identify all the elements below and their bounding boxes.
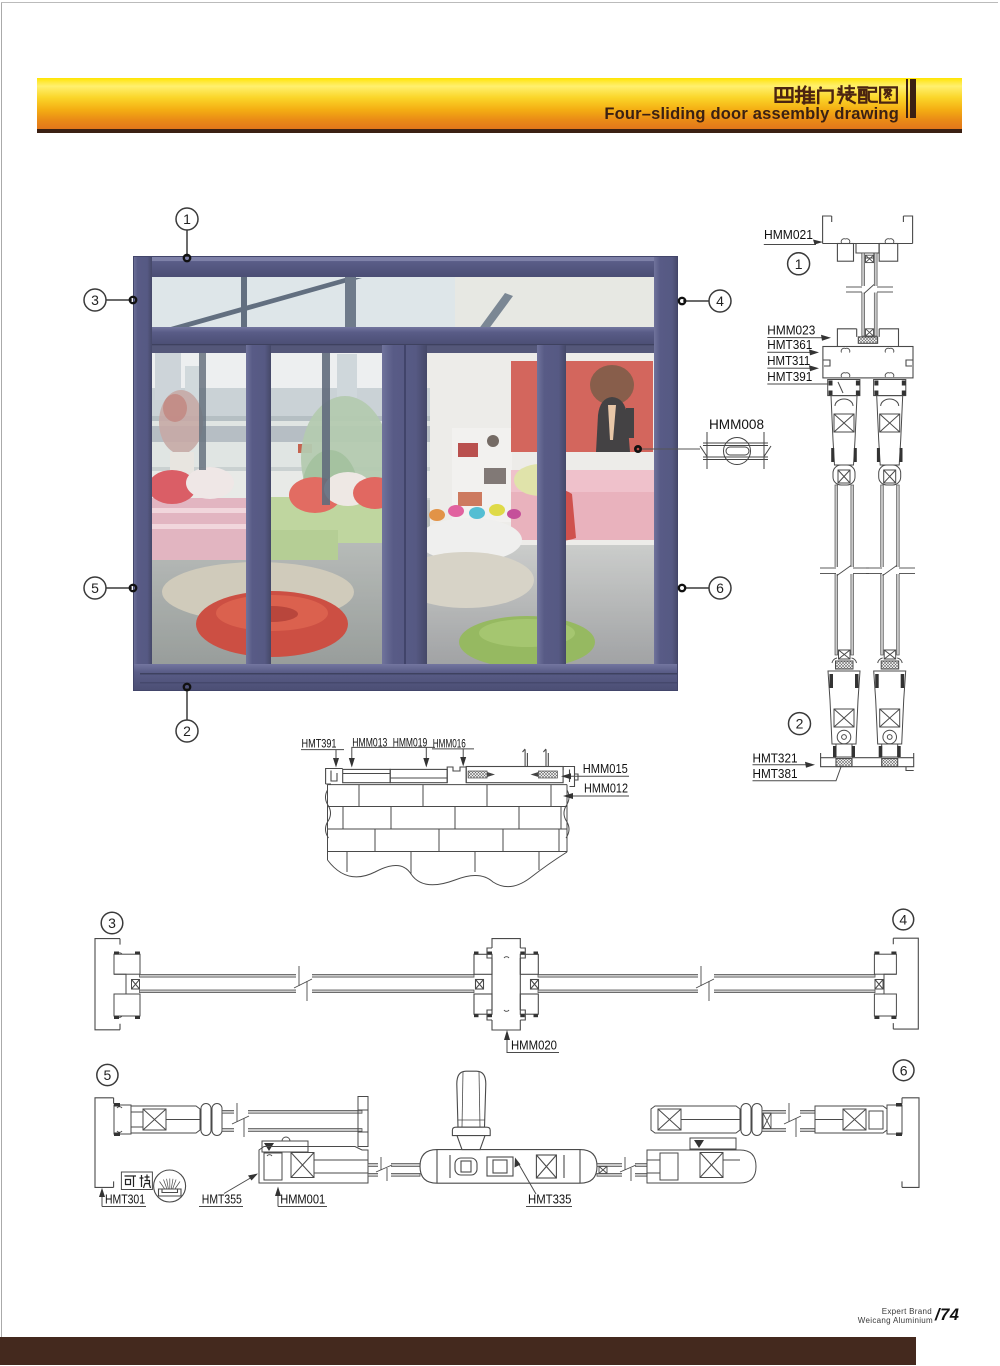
svg-text:HMT311: HMT311	[767, 354, 810, 368]
svg-text:HMM012: HMM012	[584, 781, 628, 796]
svg-text:HMT321: HMT321	[753, 751, 798, 765]
svg-text:1: 1	[795, 256, 803, 272]
svg-text:HMM023: HMM023	[767, 324, 815, 338]
svg-text:HMT335: HMT335	[528, 1193, 572, 1207]
svg-text:6: 6	[716, 580, 724, 596]
svg-text:HMM001: HMM001	[280, 1193, 325, 1207]
svg-text:HMM021: HMM021	[764, 228, 813, 242]
svg-text:HMM008: HMM008	[709, 417, 764, 432]
svg-text:HMT381: HMT381	[753, 767, 798, 781]
svg-text:2: 2	[183, 723, 191, 739]
svg-text:HMT361: HMT361	[767, 338, 812, 352]
svg-text:4: 4	[716, 293, 724, 309]
svg-text:HMT391: HMT391	[302, 737, 337, 751]
svg-text:5: 5	[104, 1067, 112, 1083]
svg-text:5: 5	[91, 580, 99, 596]
svg-text:HMM015: HMM015	[583, 761, 628, 776]
svg-text:6: 6	[900, 1062, 908, 1078]
svg-text:HMT391: HMT391	[767, 370, 812, 384]
svg-text:2: 2	[796, 716, 804, 732]
svg-text:4: 4	[899, 912, 907, 928]
svg-text:HMT301: HMT301	[105, 1193, 145, 1207]
svg-text:3: 3	[91, 292, 99, 308]
svg-text:HMT355: HMT355	[202, 1193, 242, 1207]
svg-text:HMM020: HMM020	[511, 1039, 557, 1053]
svg-text:3: 3	[108, 915, 116, 931]
svg-text:1: 1	[183, 211, 191, 227]
